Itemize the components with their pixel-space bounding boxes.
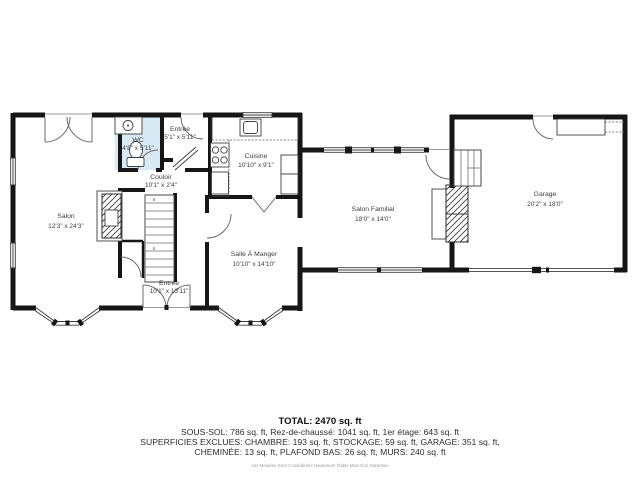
dining-room-door — [207, 214, 231, 238]
svg-text:10'1" x 13'11": 10'1" x 13'11" — [150, 288, 189, 295]
stair-count-top: 5 — [153, 197, 156, 202]
room-label-entree: Entrée 5'1" x 5'11" — [164, 126, 196, 141]
kitchen-swing-door — [252, 197, 276, 212]
svg-text:Couloir: Couloir — [150, 174, 172, 181]
svg-text:WC: WC — [132, 137, 143, 144]
garage-side-door — [533, 116, 553, 139]
measurement-disclaimer: Les Mesures Sont Considérées Hautement F… — [0, 463, 640, 469]
fireplace — [97, 191, 122, 241]
room-label-garage: Garage 20'2" x 18'0" — [527, 191, 563, 208]
wc-sink-fixture — [115, 117, 142, 134]
room-label-salon-familial: Salon Familial 18'0" x 14'0" — [352, 206, 395, 223]
svg-text:5'1" x 5'11": 5'1" x 5'11" — [164, 134, 196, 141]
svg-text:Entrée: Entrée — [170, 126, 190, 133]
floor-plan-page: { "plan": { "rooms": { "salon": {"name":… — [0, 0, 640, 480]
svg-text:Garage: Garage — [534, 191, 557, 198]
salon-left-window-1 — [10, 158, 16, 185]
kitchen-sink — [240, 119, 261, 136]
workbench — [557, 119, 624, 135]
svg-text:20'2" x 18'0": 20'2" x 18'0" — [527, 201, 563, 208]
family-room-door — [426, 150, 450, 180]
main-staircase: 5 5 — [145, 195, 174, 282]
family-room-top-windows — [324, 147, 424, 154]
total-area: TOTAL: 2470 sq. ft — [0, 416, 640, 427]
salon-left-window-2 — [10, 243, 16, 268]
svg-text:10'10" x 14'10": 10'10" x 14'10" — [233, 261, 277, 268]
kitchen-window — [243, 112, 272, 118]
entry-closet-diagonal — [173, 147, 198, 170]
dishwasher — [212, 172, 229, 194]
svg-text:12'3" x 24'3": 12'3" x 24'3" — [48, 223, 84, 230]
svg-text:Salon: Salon — [57, 213, 75, 220]
refrigerator — [281, 155, 298, 194]
svg-text:4'8" x 5'11": 4'8" x 5'11" — [122, 145, 154, 152]
salon-bay-window — [35, 307, 100, 326]
garage-staircase — [454, 150, 481, 186]
svg-text:10'10" x 9'1": 10'10" x 9'1" — [238, 162, 274, 169]
stair-count-bottom: 5 — [153, 246, 156, 251]
svg-text:Salon Familial: Salon Familial — [352, 206, 395, 213]
floor-areas: SOUS-SOL: 786 sq. ft, Rez-de-chaussé: 10… — [0, 427, 640, 437]
excluded-areas-1: SUPERFICIES EXCLUES: CHAMBRE: 193 sq. ft… — [0, 437, 640, 447]
room-label-salle-a-manger: Salle À Manger 10'10" x 14'10" — [231, 249, 278, 268]
chimney — [432, 185, 468, 242]
room-label-salon: Salon 12'3" x 24'3" — [48, 213, 84, 230]
garage-door — [469, 267, 614, 273]
area-summary: TOTAL: 2470 sq. ft SOUS-SOL: 786 sq. ft,… — [0, 416, 640, 469]
svg-text:10'1" x 2'4": 10'1" x 2'4" — [145, 182, 178, 189]
svg-text:Salle À Manger: Salle À Manger — [231, 249, 278, 258]
floor-plan-drawing: 5 5 Salon 12'3" x 24'3" WC 4'8" x 5'11" … — [0, 0, 640, 480]
french-doors-salon — [45, 114, 92, 142]
room-label-couloir: Couloir 10'1" x 2'4" — [145, 174, 178, 189]
closet-door-arc — [121, 257, 141, 277]
stove-burners — [211, 143, 230, 167]
svg-text:18'0" x 14'0": 18'0" x 14'0" — [355, 216, 391, 223]
dining-bay-window — [218, 307, 283, 326]
svg-text:Entrée: Entrée — [159, 280, 179, 287]
family-room-bottom-window — [338, 267, 422, 273]
svg-text:Cuisine: Cuisine — [245, 153, 268, 160]
room-label-cuisine: Cuisine 10'10" x 9'1" — [238, 153, 274, 169]
excluded-areas-2: CHEMINÉE: 13 sq. ft, PLAFOND BAS: 26 sq.… — [0, 447, 640, 457]
